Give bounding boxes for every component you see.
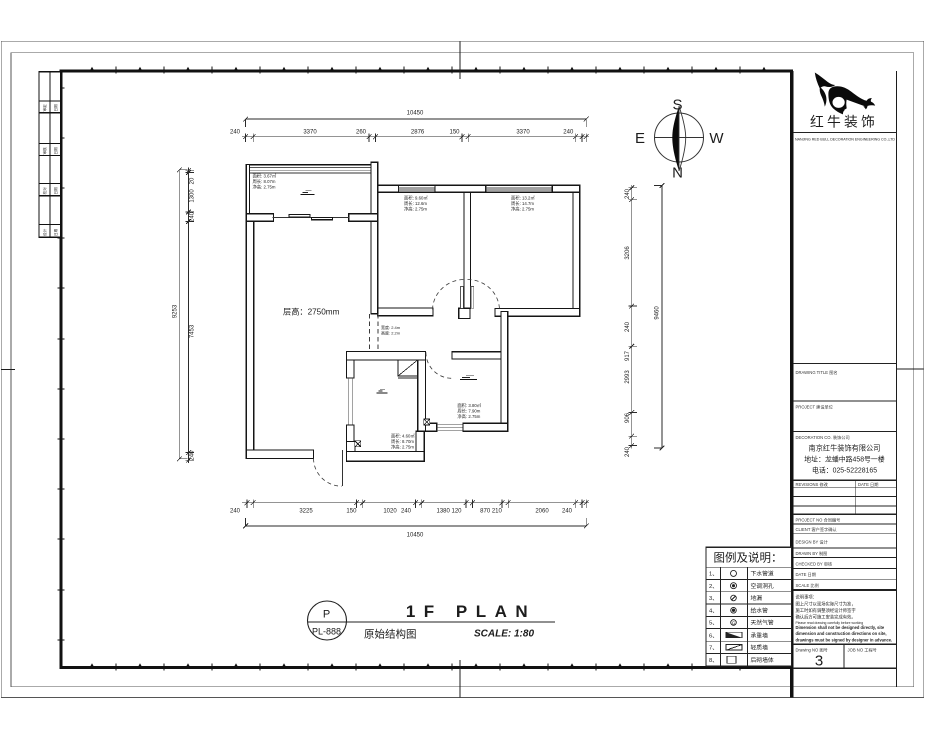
svg-text:轻质墙: 轻质墙 xyxy=(751,644,769,652)
svg-text:日期: 日期 xyxy=(53,147,58,155)
svg-text:240: 240 xyxy=(230,130,241,136)
svg-text:8、: 8、 xyxy=(709,658,718,664)
svg-text:S: S xyxy=(672,97,682,114)
svg-text:870 210: 870 210 xyxy=(480,509,502,515)
svg-text:3370: 3370 xyxy=(516,130,530,136)
svg-text:E: E xyxy=(635,130,645,147)
svg-text:2、: 2、 xyxy=(709,584,718,590)
svg-text:红牛装饰: 红牛装饰 xyxy=(810,115,878,130)
svg-text:1、: 1、 xyxy=(709,572,718,578)
svg-text:9253: 9253 xyxy=(173,304,179,318)
svg-text:日期: 日期 xyxy=(53,187,58,195)
svg-text:dimension and construction dir: dimension and construction directions on… xyxy=(796,631,887,636)
svg-text:PROJECT 建设单位: PROJECT 建设单位 xyxy=(796,404,833,411)
svg-text:240: 240 xyxy=(625,446,631,457)
svg-text:净高: 2.75m: 净高: 2.75m xyxy=(253,184,276,191)
svg-text:CHECKED BY 审核: CHECKED BY 审核 xyxy=(796,561,834,568)
svg-text:3206: 3206 xyxy=(625,246,631,260)
svg-text:240: 240 xyxy=(190,450,196,461)
svg-text:240: 240 xyxy=(190,211,196,222)
svg-text:1300: 1300 xyxy=(190,189,196,203)
svg-text:150: 150 xyxy=(449,130,460,136)
svg-text:CLIENT 客户签字确认: CLIENT 客户签字确认 xyxy=(796,526,838,533)
svg-text:10450: 10450 xyxy=(407,111,424,117)
svg-text:确认后方可施工安装完成有效。: 确认后方可施工安装完成有效。 xyxy=(796,614,856,621)
svg-text:图上尺寸以现场实际尺寸为准，: 图上尺寸以现场实际尺寸为准， xyxy=(796,601,856,608)
svg-text:高度: 2.2m: 高度: 2.2m xyxy=(381,330,401,336)
svg-text:20: 20 xyxy=(190,177,196,184)
svg-text:150: 150 xyxy=(346,509,357,515)
svg-text:240: 240 xyxy=(563,130,574,136)
svg-text:917: 917 xyxy=(625,350,631,361)
svg-text:空调洞孔: 空调洞孔 xyxy=(751,582,774,590)
svg-text:南京红牛装饰有限公司: 南京红牛装饰有限公司 xyxy=(809,444,881,453)
svg-text:净高: 2.75m: 净高: 2.75m xyxy=(511,206,534,213)
svg-text:承重墙: 承重墙 xyxy=(751,631,769,639)
svg-text:DESIGN BY 设计: DESIGN BY 设计 xyxy=(796,539,828,546)
svg-text:DATE 日期: DATE 日期 xyxy=(858,482,878,488)
svg-text:1020: 1020 xyxy=(383,509,397,515)
svg-text:后砌墙体: 后砌墙体 xyxy=(751,656,774,664)
svg-text:260: 260 xyxy=(356,130,367,136)
svg-text:DRAWN BY 制图: DRAWN BY 制图 xyxy=(796,550,828,557)
svg-text:10450: 10450 xyxy=(407,533,424,539)
svg-text:日期: 日期 xyxy=(53,104,58,112)
svg-text:天然气管: 天然气管 xyxy=(751,619,774,627)
svg-text:5、: 5、 xyxy=(709,621,718,627)
svg-text:240: 240 xyxy=(562,509,573,515)
svg-text:3、: 3、 xyxy=(709,596,718,602)
svg-text:drawings must be signed by des: drawings must be signed by designer in a… xyxy=(796,637,893,642)
svg-text:3: 3 xyxy=(815,653,823,670)
svg-text:6、: 6、 xyxy=(709,633,718,639)
svg-text:日期: 日期 xyxy=(53,228,58,236)
svg-text:REVISIONS 修改: REVISIONS 修改 xyxy=(796,481,829,488)
svg-text:1380 120: 1380 120 xyxy=(436,509,462,515)
svg-text:地址：龙蟠中路458号一楼: 地址：龙蟠中路458号一楼 xyxy=(804,455,885,464)
svg-text:净高: 2.75m: 净高: 2.75m xyxy=(457,413,480,420)
svg-text:P: P xyxy=(323,609,330,621)
svg-text:JOB NO 工程号: JOB NO 工程号 xyxy=(848,647,877,654)
svg-text:W: W xyxy=(709,130,724,147)
svg-text:3225: 3225 xyxy=(299,509,313,515)
svg-text:净高: 2.75m: 净高: 2.75m xyxy=(391,444,414,451)
svg-text:层高：2750mm: 层高：2750mm xyxy=(283,307,340,317)
svg-text:审定: 审定 xyxy=(42,104,47,112)
svg-text:DATE 日期: DATE 日期 xyxy=(796,572,816,578)
svg-text:原始结构图: 原始结构图 xyxy=(364,628,417,641)
svg-text:906: 906 xyxy=(625,412,631,423)
svg-text:DECORATION CO. 装饰公司: DECORATION CO. 装饰公司 xyxy=(796,434,850,441)
svg-text:地漏: 地漏 xyxy=(751,594,763,602)
svg-text:PL-888: PL-888 xyxy=(312,627,341,637)
svg-text:DRAWING TITLE 图名: DRAWING TITLE 图名 xyxy=(796,369,838,376)
svg-text:2876: 2876 xyxy=(411,130,425,136)
svg-text:2060: 2060 xyxy=(535,509,549,515)
svg-text:PROJECT NO 合同编号: PROJECT NO 合同编号 xyxy=(796,517,841,524)
svg-text:240: 240 xyxy=(625,188,631,199)
svg-text:240: 240 xyxy=(625,321,631,332)
svg-text:4、: 4、 xyxy=(709,609,718,615)
svg-text:9460: 9460 xyxy=(655,306,661,320)
svg-text:3370: 3370 xyxy=(303,130,317,136)
svg-text:SCALE: 1:80: SCALE: 1:80 xyxy=(474,629,534,640)
svg-text:审核: 审核 xyxy=(42,147,47,155)
svg-text:7453: 7453 xyxy=(190,324,196,338)
svg-text:1F PLAN: 1F PLAN xyxy=(406,602,536,621)
svg-text:NANJING RED BULL DECORATION EN: NANJING RED BULL DECORATION ENGINEERING … xyxy=(795,138,895,142)
svg-text:校对: 校对 xyxy=(42,187,47,195)
svg-text:下水管道: 下水管道 xyxy=(751,570,774,578)
svg-text:2993: 2993 xyxy=(625,370,631,384)
svg-text:G: G xyxy=(732,620,736,625)
svg-text:图例及说明：: 图例及说明： xyxy=(714,551,783,565)
svg-text:SCALE 比例: SCALE 比例 xyxy=(796,582,819,589)
svg-text:宽度: 2.4m: 宽度: 2.4m xyxy=(381,324,401,330)
svg-text:电话：025-52228165: 电话：025-52228165 xyxy=(812,466,877,475)
svg-text:240: 240 xyxy=(401,509,412,515)
svg-text:设计: 设计 xyxy=(42,228,47,236)
svg-text:Dimension shall not be designe: Dimension shall not be designed directly… xyxy=(796,625,885,630)
svg-text:净高: 2.75m: 净高: 2.75m xyxy=(404,206,427,213)
svg-text:给水管: 给水管 xyxy=(751,607,769,615)
svg-text:说明事项：: 说明事项： xyxy=(796,594,817,601)
svg-text:7、: 7、 xyxy=(709,646,718,652)
svg-text:施工时如有调整须经设计师签字: 施工时如有调整须经设计师签字 xyxy=(796,607,856,614)
svg-text:N: N xyxy=(672,165,683,182)
svg-text:240: 240 xyxy=(230,509,241,515)
